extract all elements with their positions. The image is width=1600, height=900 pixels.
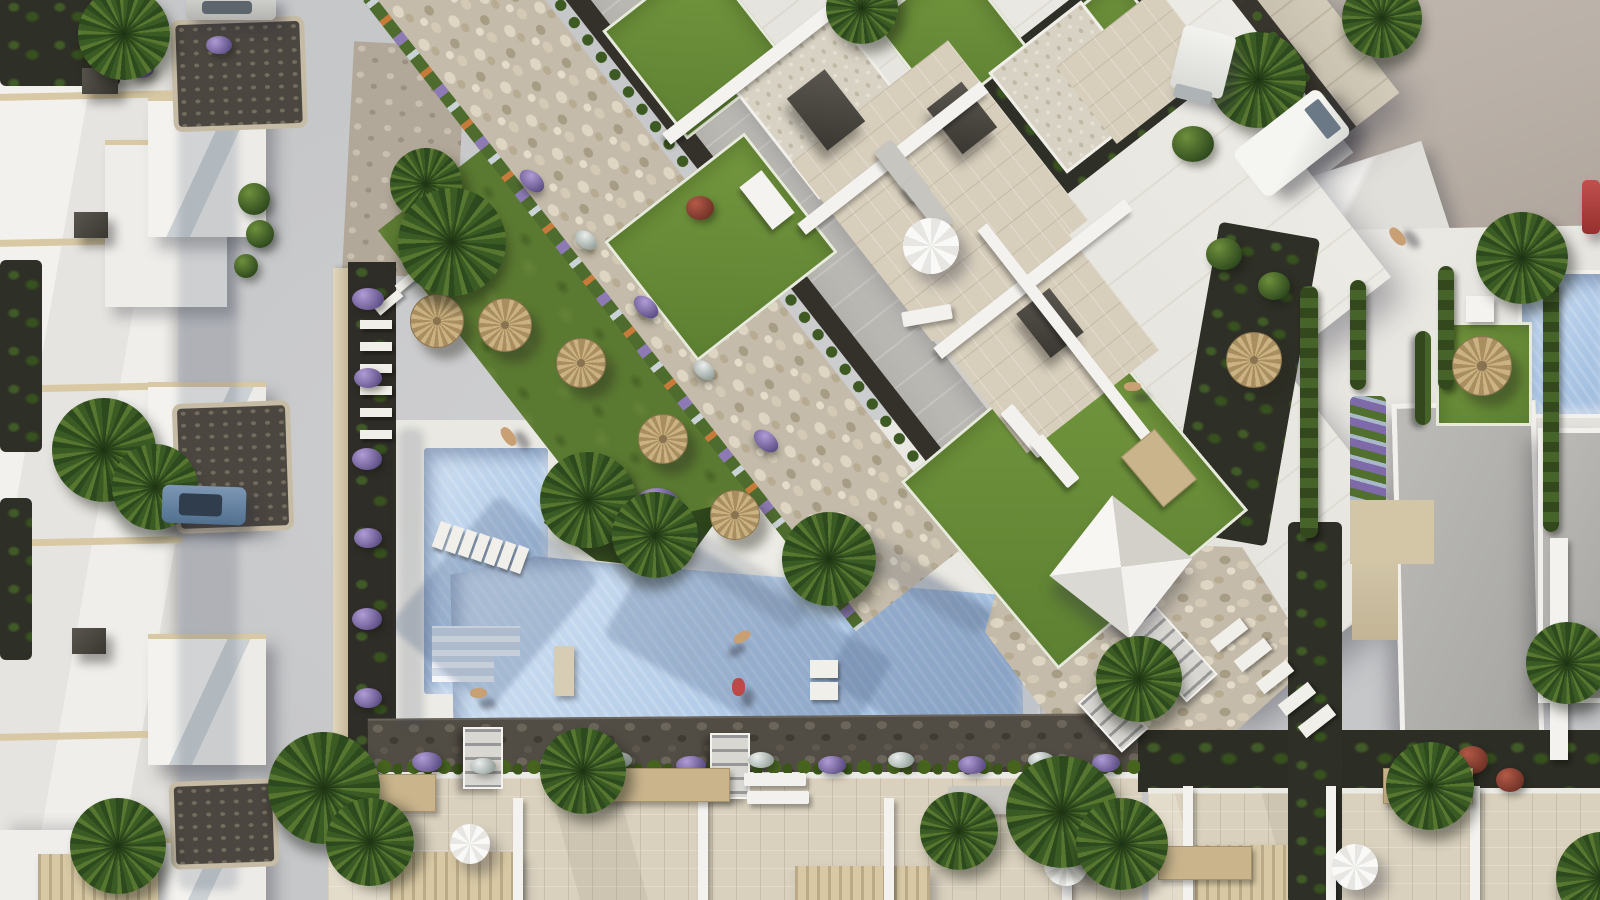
bush-purple xyxy=(206,36,232,54)
wicker-umbrella xyxy=(478,298,532,352)
bush-purple xyxy=(352,288,384,310)
lounger xyxy=(744,773,806,786)
gravel-dark xyxy=(170,16,308,133)
palm-tree xyxy=(1476,212,1568,304)
car-silver xyxy=(186,0,276,20)
palm-tree xyxy=(70,798,166,894)
gravel-dark xyxy=(168,778,279,870)
roofbox xyxy=(74,212,108,238)
table-tan xyxy=(1158,846,1252,880)
bush xyxy=(246,220,274,248)
wall-strip xyxy=(698,798,708,900)
bush-purple xyxy=(352,448,382,470)
wicker-umbrella xyxy=(556,338,606,388)
hedge-v xyxy=(1300,286,1318,538)
bush-purple xyxy=(354,528,382,548)
wicker-umbrella xyxy=(1452,336,1512,396)
bush-pale xyxy=(470,758,496,774)
bush xyxy=(1206,238,1242,270)
bush-purple xyxy=(354,688,382,708)
car-red xyxy=(1582,180,1600,234)
lounger xyxy=(747,791,809,804)
hedge-v xyxy=(1415,331,1431,425)
white-umbrella xyxy=(903,218,959,274)
wall-strip xyxy=(1183,786,1193,900)
bush xyxy=(1258,272,1290,300)
slab xyxy=(810,682,838,700)
bush-purple xyxy=(354,368,382,388)
palm-tree xyxy=(920,792,998,870)
bush-pale xyxy=(748,752,774,768)
bush-red xyxy=(1496,768,1524,792)
roofbox xyxy=(72,628,106,654)
wicker-umbrella xyxy=(1226,332,1282,388)
aerial-render-scene: Aerial top-down 3D architectural render … xyxy=(0,0,1600,900)
shadow xyxy=(398,428,424,728)
slab xyxy=(810,660,838,678)
car-blue xyxy=(161,485,246,526)
darkveg xyxy=(0,498,32,660)
palm-tree xyxy=(540,728,626,814)
person xyxy=(1124,382,1141,391)
bush-red xyxy=(686,196,714,220)
slab xyxy=(360,430,392,439)
person-red xyxy=(732,678,745,696)
slab xyxy=(360,342,392,351)
bush-pale xyxy=(888,752,914,768)
hedge-v xyxy=(1543,280,1559,532)
bush xyxy=(238,183,270,215)
wicker-umbrella xyxy=(410,294,464,348)
wicker-umbrella xyxy=(710,490,760,540)
pergola xyxy=(795,866,930,900)
slab xyxy=(360,320,392,329)
wall-beige xyxy=(554,646,574,696)
darkveg xyxy=(0,260,42,452)
bush-purple xyxy=(352,608,382,630)
hedge-v xyxy=(1350,280,1366,390)
flowerbed xyxy=(1350,396,1386,508)
white-umbrella xyxy=(1332,844,1378,890)
bush xyxy=(1172,126,1214,162)
wall-strip xyxy=(884,798,894,900)
slab xyxy=(360,408,392,417)
wicker-umbrella xyxy=(638,414,688,464)
wall-strip xyxy=(1326,786,1336,900)
bush-purple xyxy=(818,756,846,774)
gray-roof xyxy=(1391,400,1544,752)
sandpatch xyxy=(1350,500,1434,564)
wall-strip xyxy=(513,798,523,900)
table-white xyxy=(1466,296,1494,322)
bush-purple xyxy=(958,756,986,774)
bush xyxy=(234,254,258,278)
white-umbrella xyxy=(450,824,490,864)
person xyxy=(470,688,487,698)
bottom-right-garden xyxy=(1138,730,1600,792)
bush-purple xyxy=(412,752,442,772)
palm-tree xyxy=(1526,622,1600,704)
